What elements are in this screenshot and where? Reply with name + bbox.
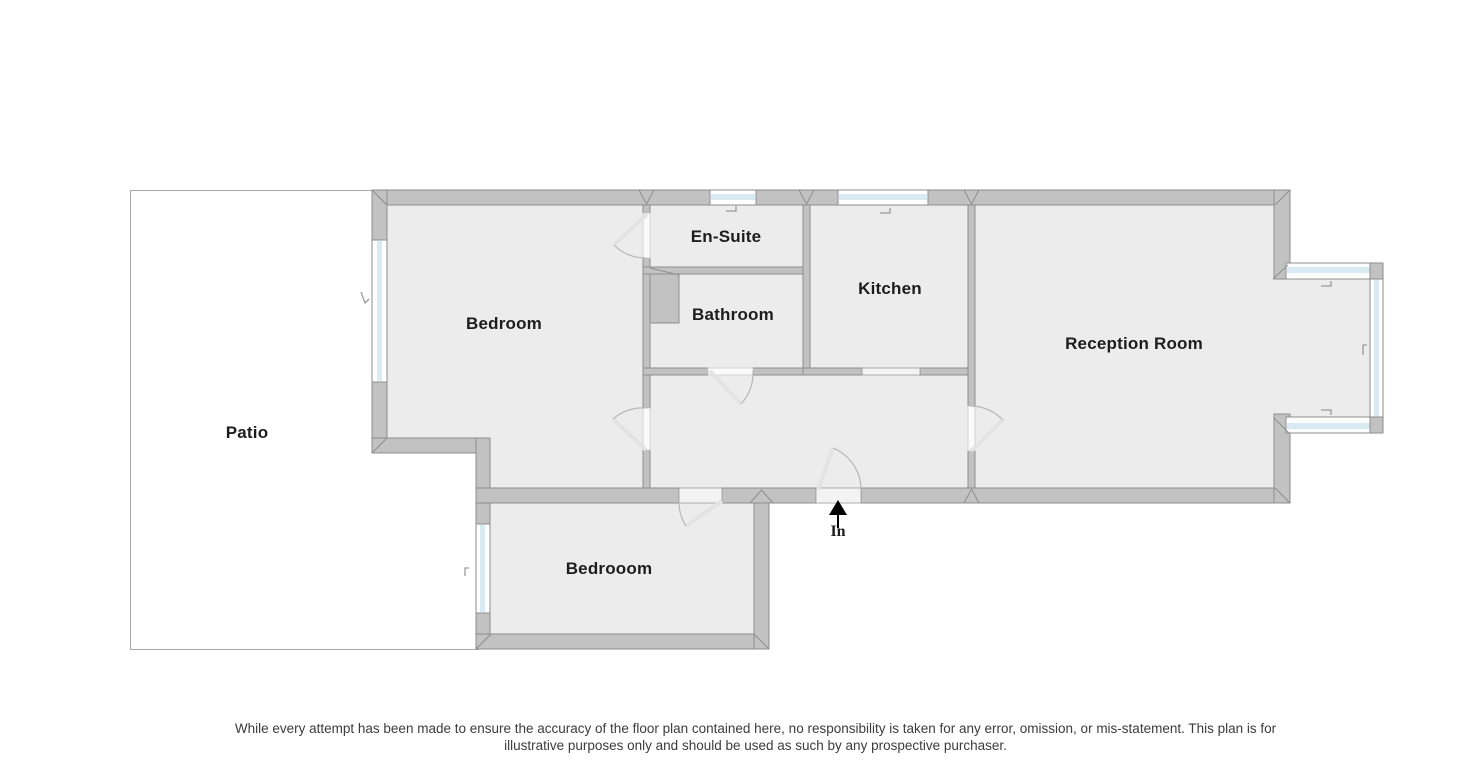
room-label-patio: Patio <box>226 423 269 443</box>
wall-segment <box>476 488 679 503</box>
room-label-ensuite: En-Suite <box>691 227 762 247</box>
wall-segment <box>643 368 708 375</box>
wall-segment <box>372 438 490 453</box>
bay-window-top-glass <box>1287 267 1372 273</box>
ensuite-door-gap <box>643 213 650 258</box>
wall-segment <box>754 488 769 649</box>
wall-segment <box>643 267 810 274</box>
bay-corner-post <box>1370 417 1383 433</box>
floorplan-drawing <box>0 0 1477 771</box>
kitchen-opening <box>862 368 920 375</box>
disclaimer-text: While every attempt has been made to ens… <box>98 721 1413 754</box>
wall-segment <box>372 190 1290 205</box>
bedrooom-door-gap <box>679 488 722 503</box>
floor-bay <box>1278 270 1374 426</box>
floors <box>380 198 1374 641</box>
wall-segment <box>861 488 1290 503</box>
wall-segment <box>476 634 769 649</box>
wall-segment <box>643 258 650 408</box>
reception-door-gap <box>968 406 975 451</box>
ensuite-window-glass <box>711 194 755 200</box>
bathroom-fixture <box>650 268 679 323</box>
wall-segment <box>968 451 975 488</box>
wall-segment <box>476 438 490 526</box>
disclaimer-line-1: While every attempt has been made to ens… <box>98 721 1413 738</box>
bay-window-right-glass <box>1374 264 1379 432</box>
disclaimer-line-2: illustrative purposes only and should be… <box>98 738 1413 755</box>
wall-segment <box>968 205 975 406</box>
room-label-bedrooom: Bedrooom <box>566 559 653 579</box>
bedrooom-window-glass <box>480 525 485 612</box>
room-label-bedroom: Bedroom <box>466 314 542 334</box>
kitchen-window-glass <box>839 194 927 200</box>
entrance-label: In <box>830 523 845 541</box>
bay-window-bottom-glass <box>1287 423 1372 429</box>
wall-segment <box>722 488 816 503</box>
room-label-bathroom: Bathroom <box>692 305 774 325</box>
bedroom-door-gap <box>643 408 650 450</box>
entrance-door-gap <box>816 488 861 503</box>
room-label-reception: Reception Room <box>1065 334 1203 354</box>
bedroom-window-glass <box>377 241 382 381</box>
wall-segment <box>803 368 862 375</box>
wall-segment <box>803 205 810 375</box>
wall-segment <box>920 368 975 375</box>
room-label-kitchen: Kitchen <box>858 279 922 299</box>
bay-corner-post <box>1370 263 1383 279</box>
wall-segment <box>753 368 803 375</box>
wall-segment <box>643 450 650 488</box>
wall-segment <box>643 205 650 213</box>
fixture-block <box>650 274 679 323</box>
floorplan: Patio Bedroom En-Suite Bathroom Kitchen … <box>0 0 1477 771</box>
floor-hallway <box>646 371 972 493</box>
